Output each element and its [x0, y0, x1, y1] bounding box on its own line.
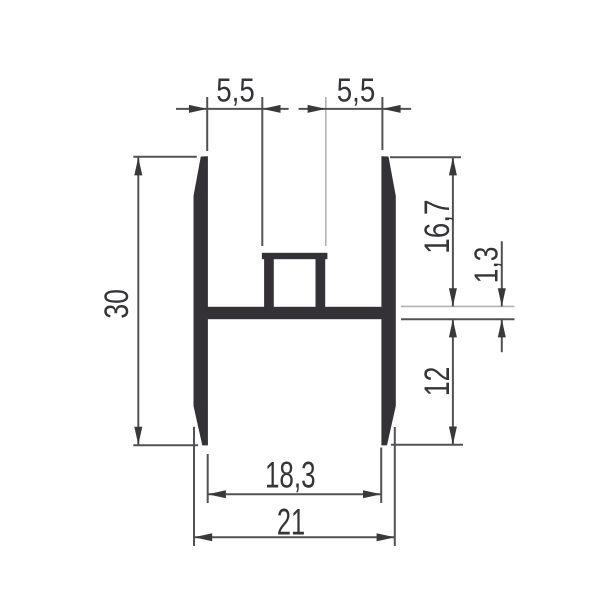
- svg-text:16,7: 16,7: [417, 199, 457, 253]
- svg-text:18,3: 18,3: [265, 455, 316, 496]
- svg-text:5,5: 5,5: [337, 73, 376, 110]
- svg-text:1,3: 1,3: [469, 247, 506, 284]
- svg-text:12: 12: [417, 367, 457, 397]
- svg-text:30: 30: [98, 289, 136, 319]
- svg-text:21: 21: [277, 501, 305, 543]
- svg-text:5,5: 5,5: [216, 73, 255, 110]
